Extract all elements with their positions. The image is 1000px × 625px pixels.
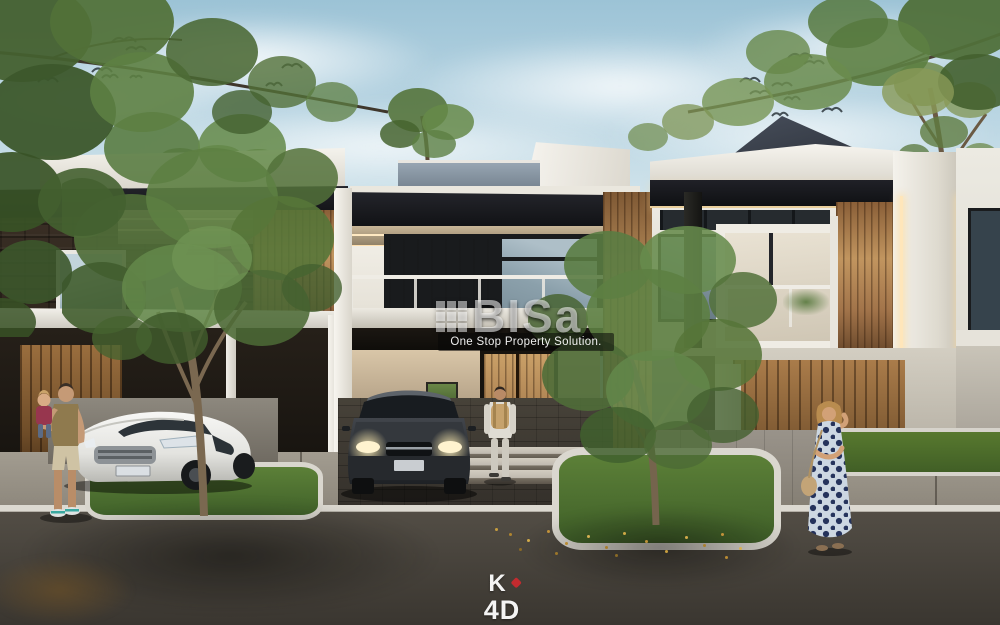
house-right-divider	[830, 216, 838, 352]
car-dark-wagon	[338, 382, 480, 502]
studio-logo-bottom: 4D	[462, 597, 542, 624]
house-right-wood-slats	[836, 202, 898, 352]
balcony-plant	[783, 289, 829, 315]
watermark: BISa One Stop Property Solution.	[436, 293, 666, 355]
red-dot-icon	[510, 577, 521, 588]
fallen-leaves	[495, 528, 498, 531]
building-grid-icon	[436, 301, 467, 332]
house-far-slab	[956, 330, 1000, 346]
watermark-subtitle: One Stop Property Solution.	[438, 333, 614, 351]
house-far-window	[968, 208, 1000, 334]
fallen-leaves-patch	[0, 555, 135, 625]
studio-logo-top: K	[488, 570, 506, 597]
person-walking-to-door	[474, 386, 526, 486]
foliage-overhang-top-right	[628, 0, 1000, 160]
foliage-overhang-top-left	[0, 0, 392, 337]
architectural-render: BISa One Stop Property Solution. K 4D	[0, 0, 1000, 625]
person-woman-polkadot-dress	[796, 400, 862, 558]
tree-foreground-center	[528, 215, 780, 525]
studio-logo: K 4D	[462, 572, 542, 624]
